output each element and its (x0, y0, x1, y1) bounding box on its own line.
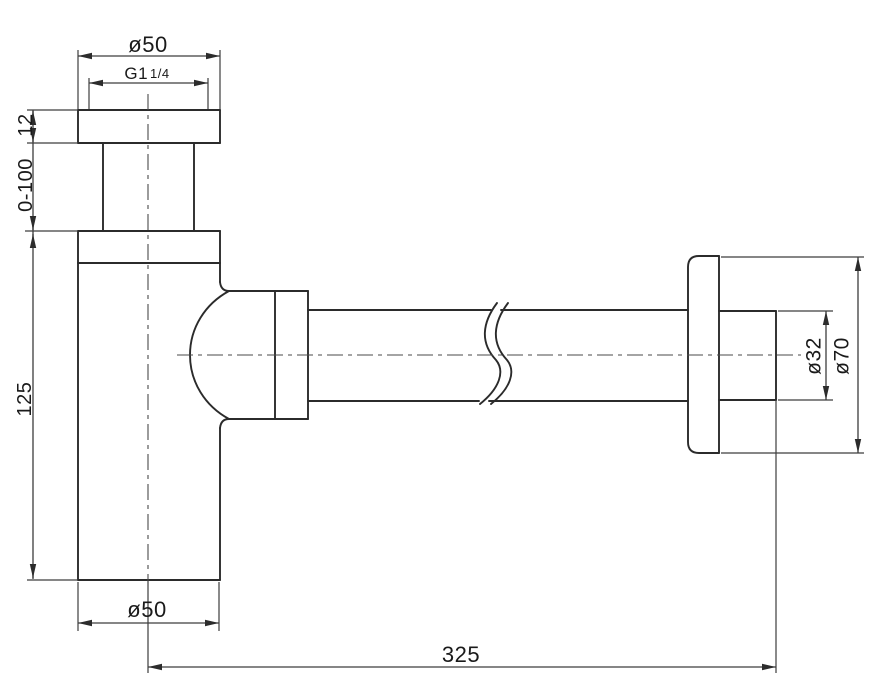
label-thread-main: G1 (124, 64, 148, 83)
label-thread-size: G11/4 (124, 64, 169, 83)
dimension-labels: ø50 G11/4 12 0-100 125 ø50 325 ø32 ø70 (14, 32, 854, 667)
label-overall-length: 325 (442, 642, 480, 667)
label-adjustable-range: 0-100 (15, 158, 37, 212)
label-bottom-diameter: ø50 (127, 597, 166, 622)
trap-outline (78, 110, 776, 580)
body-collar-outline (78, 231, 220, 263)
centerlines (148, 94, 801, 580)
label-top-diameter: ø50 (128, 32, 167, 57)
dimension-lines (33, 56, 858, 667)
label-body-height: 125 (14, 382, 36, 417)
technical-drawing-canvas: ø50 G11/4 12 0-100 125 ø50 325 ø32 ø70 (0, 0, 871, 698)
label-wall-flange-diameter: ø70 (831, 337, 854, 375)
label-thread-fraction: 1/4 (150, 66, 170, 81)
label-pipe-diameter: ø32 (803, 337, 826, 375)
drawing-page: ø50 G11/4 12 0-100 125 ø50 325 ø32 ø70 (0, 0, 871, 698)
pipe-break-symbol (480, 303, 511, 404)
top-flange-outline (78, 110, 220, 143)
trap-body-outline (78, 263, 308, 580)
label-flange-height: 12 (15, 113, 37, 136)
